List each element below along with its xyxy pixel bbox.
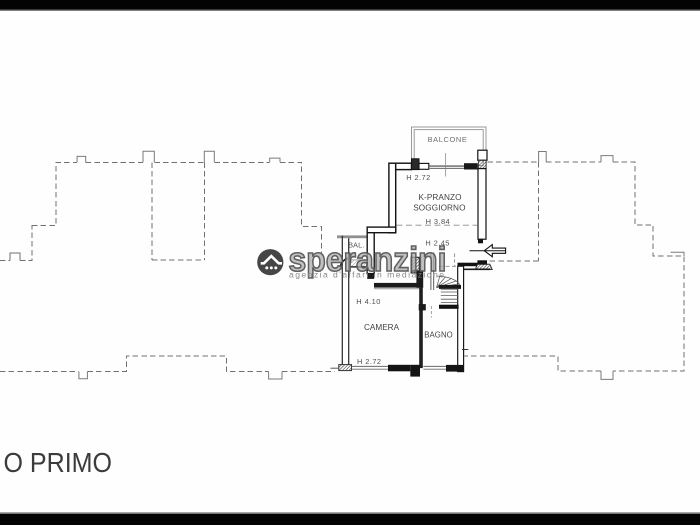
svg-text:SOGGIORNO: SOGGIORNO [413, 203, 465, 212]
svg-text:BALCONE: BALCONE [428, 135, 468, 144]
svg-text:O PRIMO: O PRIMO [4, 447, 113, 478]
svg-text:H 2.72: H 2.72 [406, 173, 430, 182]
svg-text:H 2.72: H 2.72 [357, 357, 381, 366]
svg-text:BAGNO: BAGNO [424, 331, 453, 340]
svg-text:H 3.84: H 3.84 [426, 217, 450, 226]
svg-text:K-PRANZO: K-PRANZO [418, 193, 461, 202]
svg-text:agenzia d'affari in mediazione: agenzia d'affari in mediazione [289, 269, 444, 279]
svg-text:H 4.10: H 4.10 [356, 297, 380, 306]
svg-text:CAMERA: CAMERA [364, 323, 400, 332]
